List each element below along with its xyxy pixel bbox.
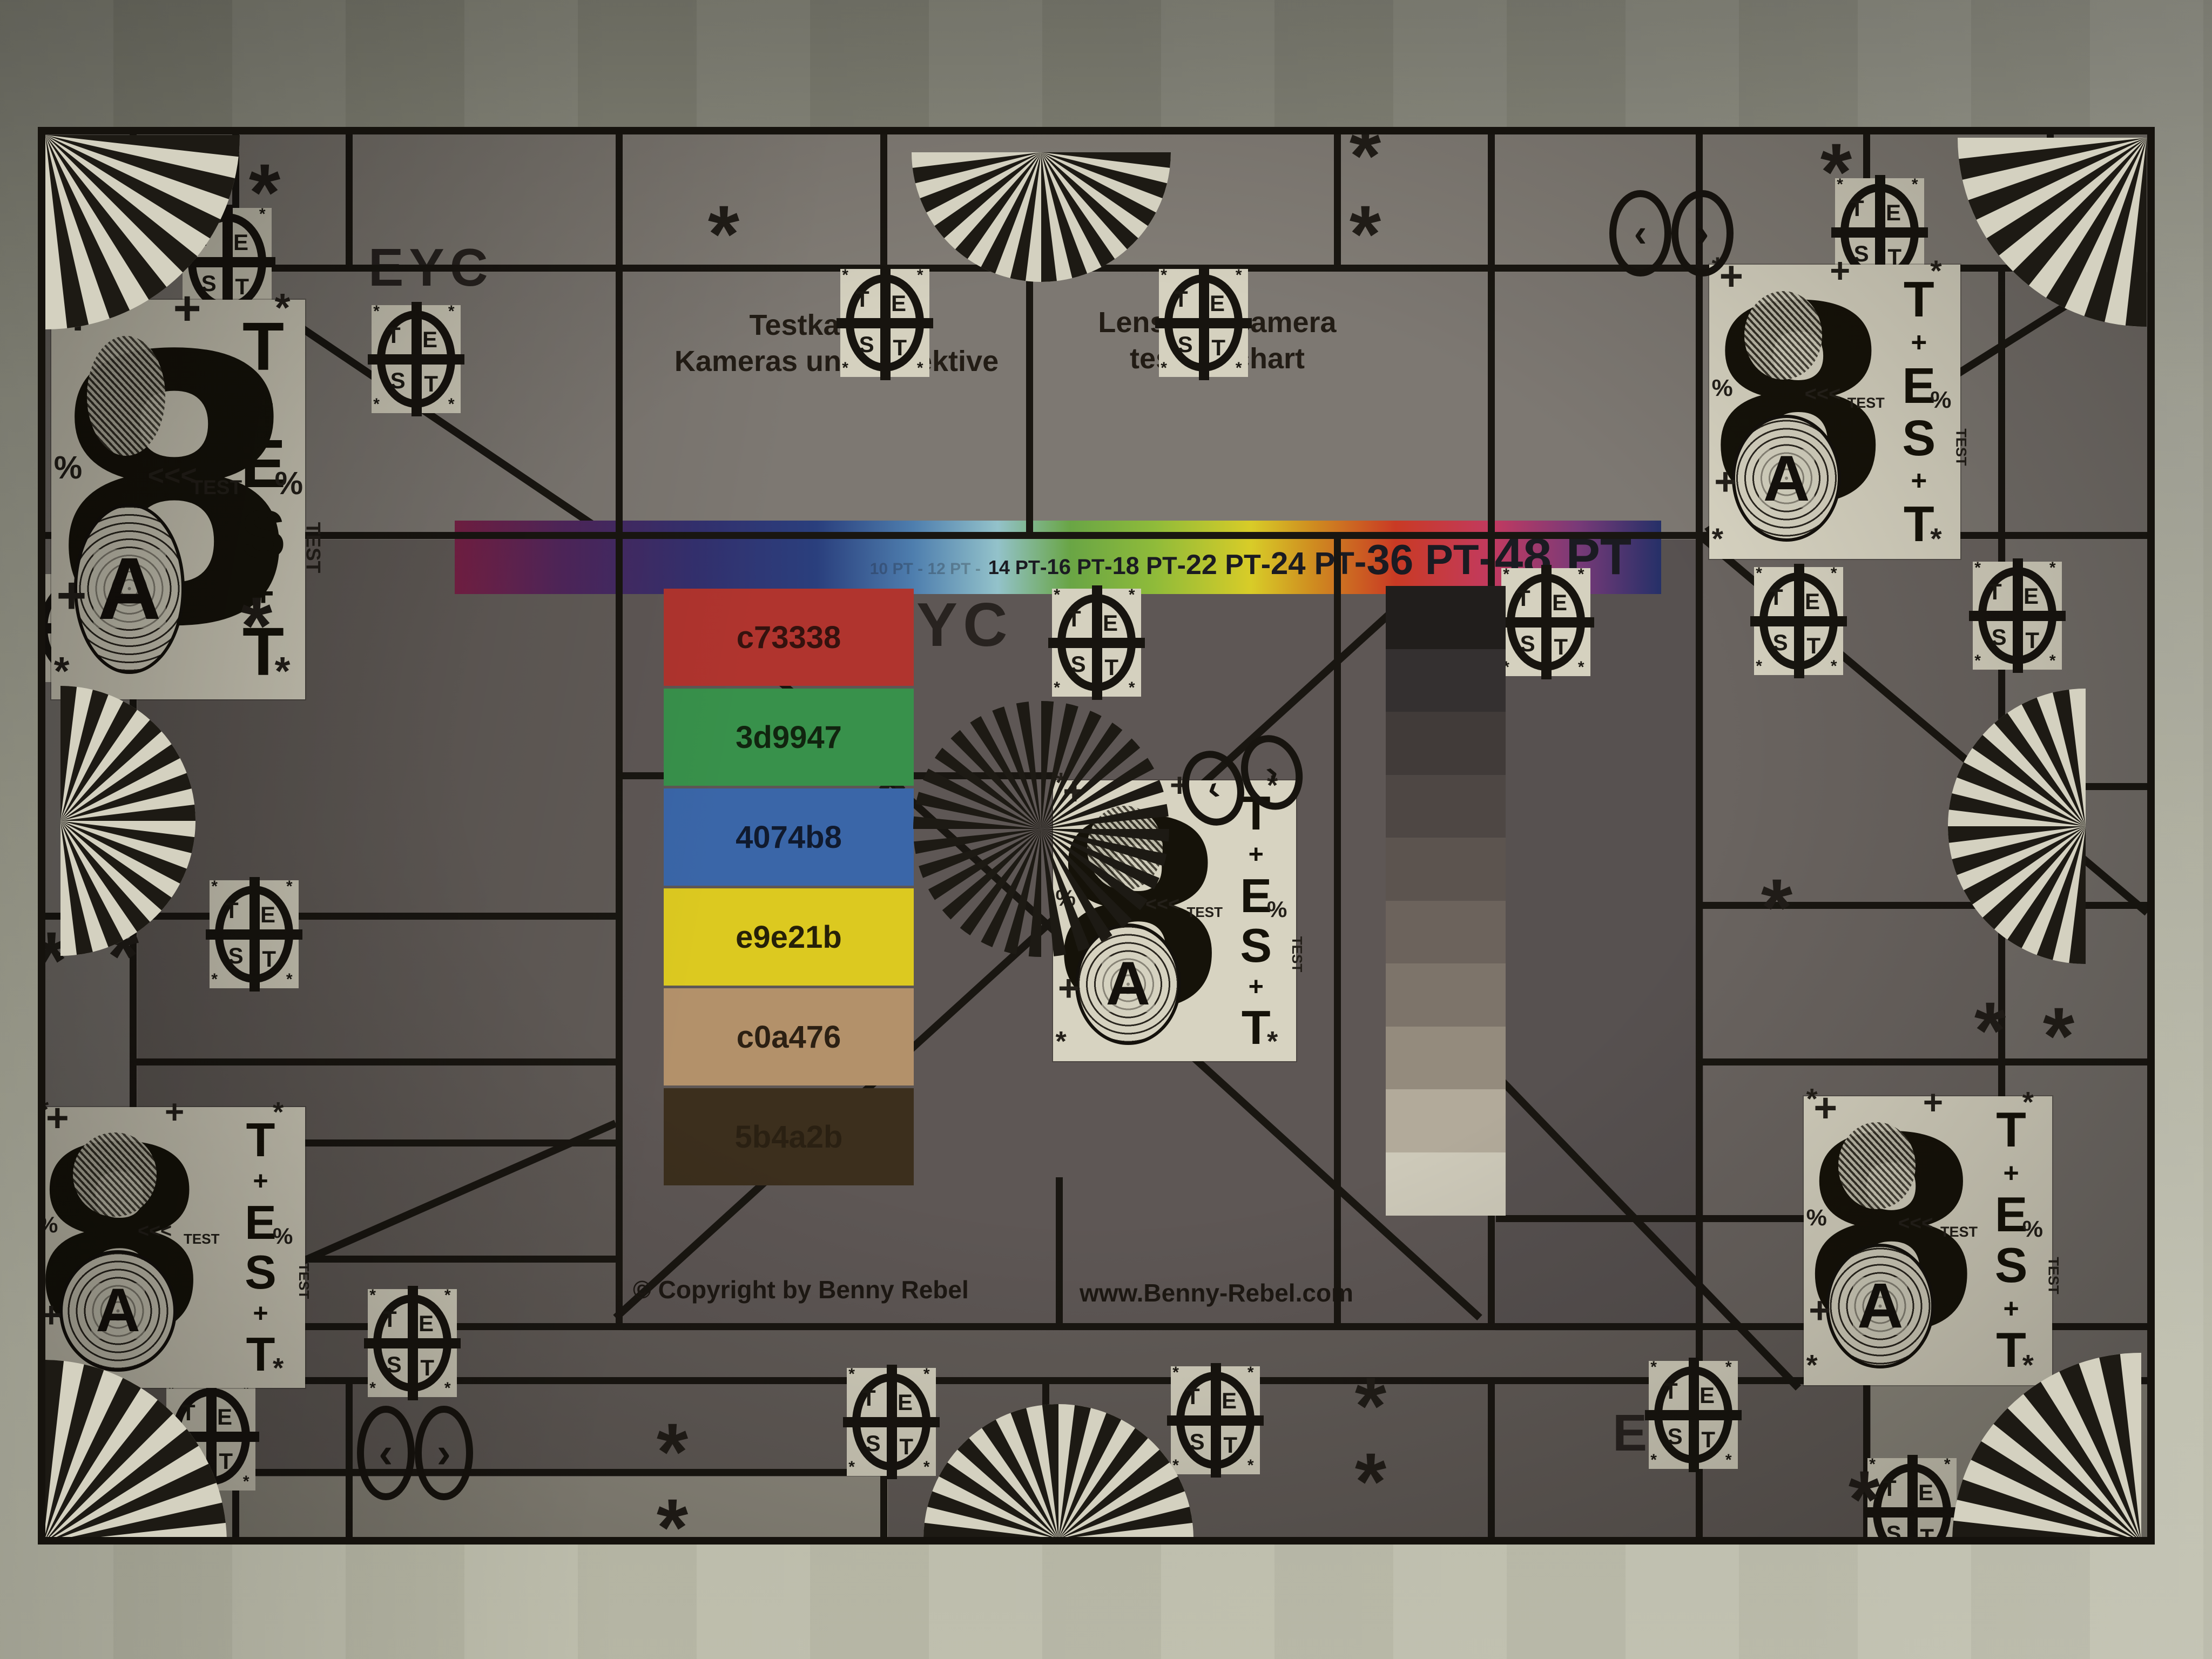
plus-mark: + <box>252 390 274 420</box>
marker-cross-horizontal <box>1969 611 2065 621</box>
marker-cross-horizontal <box>1048 638 1144 648</box>
siemens-star-center <box>913 701 1169 957</box>
test-circle-marker: TEST**** <box>372 305 461 413</box>
marker-letter: T <box>1769 584 1783 610</box>
marker-letter: T <box>1516 585 1530 611</box>
test-circle-marker: TEST**** <box>1973 562 2062 670</box>
photo-stage: EYC EYC EYC Testkarte für Kameras und Ob… <box>0 0 2212 1659</box>
marker-cross-horizontal <box>837 318 933 328</box>
grid-line-v18 <box>1488 1377 1495 1545</box>
test-circle-marker: TEST**** <box>1649 1361 1738 1469</box>
marker-letter: T <box>1920 1524 1934 1545</box>
grayscale-step-6 <box>1386 963 1506 1027</box>
siemens-fan-top-center <box>912 127 1171 282</box>
marker-letter: T <box>1988 579 2002 605</box>
marker-letter: T <box>855 286 869 312</box>
pt-scale-label: 36 PT <box>1366 535 1479 584</box>
grid-line-h5 <box>130 1058 616 1065</box>
marker-letter: S <box>1773 630 1788 656</box>
marker-letter: S <box>1668 1424 1683 1449</box>
test-letter: E <box>245 1204 276 1242</box>
star-asterisk: * <box>1350 127 1381 196</box>
grayscale-step-4 <box>1386 838 1506 901</box>
marker-letter: S <box>859 332 874 358</box>
test-circle-marker: TEST**** <box>1754 567 1843 675</box>
test-circle-marker: TEST**** <box>368 1289 457 1397</box>
test-circle-marker: TEST**** <box>1052 589 1141 697</box>
marker-letter: T <box>899 1434 913 1460</box>
marker-letter: T <box>862 1385 876 1411</box>
diagonal-line-5 <box>1496 1075 1798 1388</box>
grayscale-step-9 <box>1386 1152 1506 1216</box>
star-asterisk: * <box>657 1487 688 1545</box>
test-circle-marker: TEST**** <box>1159 269 1248 377</box>
marker-cross-horizontal <box>1645 1410 1741 1420</box>
star-asterisk: * <box>1355 1441 1386 1522</box>
marker-letter: T <box>1701 1427 1715 1453</box>
marker-cross-horizontal <box>1831 227 1927 238</box>
star-asterisk: * <box>2043 995 2074 1076</box>
marker-letter: T <box>387 322 401 348</box>
marker-letter: T <box>1806 633 1820 659</box>
test-letter: T <box>246 1121 275 1159</box>
marker-letter: E <box>1552 590 1567 616</box>
marker-letter: T <box>2025 628 2039 653</box>
resolution-8-block-top-right: 8 AT+ES+T+++****%%<<<TESTTEST <box>1709 265 1960 559</box>
swatch-hex-label: 5b4a2b <box>735 1119 843 1155</box>
marker-cross-horizontal <box>368 354 464 365</box>
resolution-8-block-bottom-right: 8 AT+ES+T+++****%%<<<TESTTEST <box>1804 1096 2052 1385</box>
marker-letter: E <box>1805 589 1820 615</box>
marker-letter: T <box>893 335 907 361</box>
grayscale-step-1 <box>1386 649 1506 713</box>
pt-scale-label: 16 PT <box>1047 555 1105 579</box>
siemens-fan-top-left-corner <box>38 127 240 329</box>
marker-letter: T <box>424 371 438 397</box>
double-circle-8-icon: ‹› <box>357 1406 473 1500</box>
pt-scale-label: 22 PT <box>1186 549 1261 581</box>
marker-letter: T <box>1664 1378 1678 1404</box>
marker-letter: S <box>1071 651 1086 677</box>
test-letter: S <box>240 508 286 562</box>
marker-letter: E <box>260 902 275 928</box>
star-asterisk: * <box>1820 131 1852 212</box>
siemens-fan-bottom-right-corner <box>1952 1353 2155 1545</box>
star-asterisk: * <box>1355 1365 1386 1446</box>
marker-letter: E <box>422 327 437 353</box>
concentric-ring-target: A <box>1732 415 1842 542</box>
pt-label-faint: 10 PT - 12 PT - <box>870 560 981 578</box>
marker-letter: S <box>1886 1521 1901 1545</box>
marker-cross-horizontal <box>364 1338 460 1348</box>
star-asterisk: * <box>1761 867 1792 948</box>
marker-letter: S <box>387 1352 402 1378</box>
marker-cross-horizontal <box>1155 318 1251 328</box>
marker-letter: T <box>1554 634 1568 660</box>
plus-mark: + <box>253 1171 268 1192</box>
marker-letter: S <box>1520 631 1535 657</box>
test-circle-marker: TEST**** <box>1501 568 1590 676</box>
plus-mark: + <box>1911 470 1927 492</box>
color-swatch-e9e21b: e9e21b <box>664 888 914 986</box>
marker-letter: T <box>1223 1432 1237 1458</box>
marker-letter: E <box>2024 583 2039 609</box>
resolution-8-block-bottom-left: 8 AT+ES+T+++****%%<<<TESTTEST <box>38 1107 305 1388</box>
star-asterisk: * <box>241 585 272 666</box>
test-circle-marker: TEST**** <box>1867 1458 1957 1545</box>
star-asterisk: * <box>708 193 739 274</box>
grid-line-v3 <box>616 134 623 1323</box>
pt-scale-label: 14 PT <box>988 556 1040 579</box>
eight-top-loop-texture <box>73 1132 157 1217</box>
marker-letter: T <box>1883 1475 1897 1501</box>
fan-wedge <box>1041 701 1054 829</box>
star-asterisk: * <box>657 1411 688 1492</box>
title-german-line2: Kameras und Objektive <box>675 345 999 377</box>
siemens-fan-left-edge <box>38 686 195 956</box>
siemens-fan-bottom-center <box>923 1404 1193 1545</box>
plus-mark: + <box>2003 1162 2019 1184</box>
test-circle-marker: TEST**** <box>210 880 299 988</box>
star-asterisk: * <box>249 152 280 233</box>
pt-scale-label: 24 PT <box>1271 545 1354 582</box>
swatch-hex-label: c73338 <box>737 619 841 656</box>
color-swatch-c73338: c73338 <box>664 589 914 686</box>
swatch-hex-label: c0a476 <box>737 1019 841 1055</box>
grid-line-v9 <box>1696 134 1703 1545</box>
star-asterisk: * <box>1849 1459 1880 1540</box>
test-chart: EYC EYC EYC Testkarte für Kameras und Ob… <box>38 127 2155 1545</box>
grid-line-v5 <box>1026 265 1033 532</box>
marker-cross-vertical <box>1907 1455 1918 1545</box>
marker-letter: S <box>1992 624 2007 650</box>
plus-mark: + <box>1249 844 1264 865</box>
marker-letter: S <box>390 368 406 394</box>
ring-letter-a: A <box>1853 1277 1907 1334</box>
plus-mark: + <box>1911 332 1927 354</box>
grid-line-v2 <box>346 134 353 265</box>
color-swatch-3d9947: 3d9947 <box>664 689 914 786</box>
test-letter: S <box>245 1253 276 1291</box>
test-letter: T <box>1242 1009 1271 1047</box>
ring-letter-a: A <box>93 549 166 629</box>
swatch-hex-label: 3d9947 <box>736 719 842 756</box>
marker-cross-horizontal <box>1750 616 1846 626</box>
pt-scale-label: 18 PT <box>1112 552 1177 580</box>
grayscale-step-0 <box>1386 586 1506 650</box>
marker-letter: E <box>1918 1480 1933 1506</box>
icon-circle: ‹ <box>357 1406 415 1500</box>
icon-circle: › <box>415 1406 473 1500</box>
test-letter: T <box>1996 1111 2026 1150</box>
grayscale-step-8 <box>1386 1089 1506 1153</box>
eight-top-loop-texture <box>1838 1122 1916 1209</box>
eight-top-loop-texture <box>1744 291 1822 380</box>
ring-letter-a: A <box>1759 449 1815 508</box>
color-swatch-c0a476: c0a476 <box>664 988 914 1085</box>
test-letter: T <box>1904 504 1934 544</box>
marker-letter: S <box>1178 332 1193 358</box>
grayscale-step-3 <box>1386 775 1506 839</box>
marker-letter: S <box>866 1431 881 1456</box>
copyright-text: © Copyright by Benny Rebel <box>633 1275 969 1304</box>
concentric-ring-target: A <box>74 503 185 673</box>
pt-separator: - <box>1104 554 1112 580</box>
fan-wedge <box>913 817 1041 829</box>
concentric-ring-target: A <box>1826 1244 1934 1368</box>
marker-letter: E <box>1222 1388 1237 1414</box>
marker-letter: E <box>1700 1382 1715 1408</box>
color-swatch-4074b8: 4074b8 <box>664 788 914 886</box>
grid-line-v13 <box>1056 1177 1063 1323</box>
grayscale-step-5 <box>1386 901 1506 965</box>
icon-circle: › <box>1671 190 1734 276</box>
test-letter: S <box>1995 1246 2028 1286</box>
marker-letter: T <box>262 946 276 972</box>
pt-separator: - <box>1177 550 1186 581</box>
marker-letter: T <box>1211 335 1225 361</box>
siemens-fan-right-edge <box>1948 689 2155 964</box>
grid-line-v17 <box>346 1377 353 1545</box>
double-circle-8-icon: ‹› <box>1609 190 1734 276</box>
test-circle-marker: TEST**** <box>847 1368 936 1476</box>
pt-separator: - <box>1354 541 1367 583</box>
grid-line-h6 <box>1696 1058 2147 1065</box>
color-swatch-5b4a2b: 5b4a2b <box>664 1088 914 1185</box>
fan-wedge <box>1041 829 1169 841</box>
fan-wedge <box>1029 829 1041 957</box>
marker-cross-horizontal <box>206 929 302 940</box>
marker-letter: T <box>1104 655 1118 680</box>
grid-line-h9 <box>1496 1215 1804 1222</box>
siemens-fan-bottom-left-corner <box>38 1360 227 1545</box>
test-circle-marker: TEST**** <box>840 269 929 377</box>
star-asterisk: * <box>1350 193 1381 274</box>
swatch-hex-label: e9e21b <box>736 919 842 955</box>
icon-circle: ‹ <box>1609 190 1671 276</box>
grayscale-step-7 <box>1386 1027 1506 1090</box>
ring-letter-a: A <box>1102 956 1155 1012</box>
marker-letter: T <box>1174 286 1188 312</box>
star-asterisk: * <box>1577 127 1609 159</box>
marker-letter: E <box>1886 200 1901 226</box>
grid-line-v8 <box>1334 532 1341 1323</box>
marker-letter: S <box>228 943 244 969</box>
pt-separator: - <box>1261 547 1271 581</box>
website-text: www.Benny-Rebel.com <box>1080 1278 1353 1307</box>
test-letter: T <box>1904 279 1934 319</box>
test-letter: S <box>1902 418 1935 458</box>
grayscale-step-2 <box>1386 712 1506 775</box>
test-letter: S <box>1240 927 1272 965</box>
eight-top-loop-texture <box>87 336 166 456</box>
pt-separator: - <box>1040 556 1047 579</box>
grid-line-v4 <box>880 134 887 265</box>
marker-letter: E <box>898 1390 913 1415</box>
marker-letter: T <box>383 1306 397 1332</box>
marker-letter: T <box>1067 606 1081 632</box>
marker-letter: E <box>1210 291 1225 316</box>
marker-letter: T <box>420 1355 434 1381</box>
grid-line-h8 <box>302 1256 616 1263</box>
marker-letter: E <box>1103 610 1118 636</box>
swatch-hex-label: 4074b8 <box>736 819 842 855</box>
grid-line-v7 <box>1334 134 1341 265</box>
plus-mark: + <box>253 1303 268 1324</box>
plus-mark: + <box>1249 976 1264 997</box>
marker-letter: T <box>225 898 239 923</box>
marker-cross-horizontal <box>1498 617 1594 628</box>
grid-line-h7 <box>302 1139 616 1147</box>
marker-letter: T <box>1850 195 1864 221</box>
plus-mark: + <box>2003 1298 2019 1319</box>
marker-letter: E <box>891 291 906 316</box>
star-asterisk: * <box>1974 990 2006 1071</box>
concentric-ring-target: A <box>59 1250 177 1372</box>
test-letter: T <box>246 1336 275 1373</box>
ring-letter-a: A <box>91 1283 144 1339</box>
marker-letter: E <box>419 1311 434 1337</box>
siemens-fan-top-right-corner <box>1958 127 2155 327</box>
